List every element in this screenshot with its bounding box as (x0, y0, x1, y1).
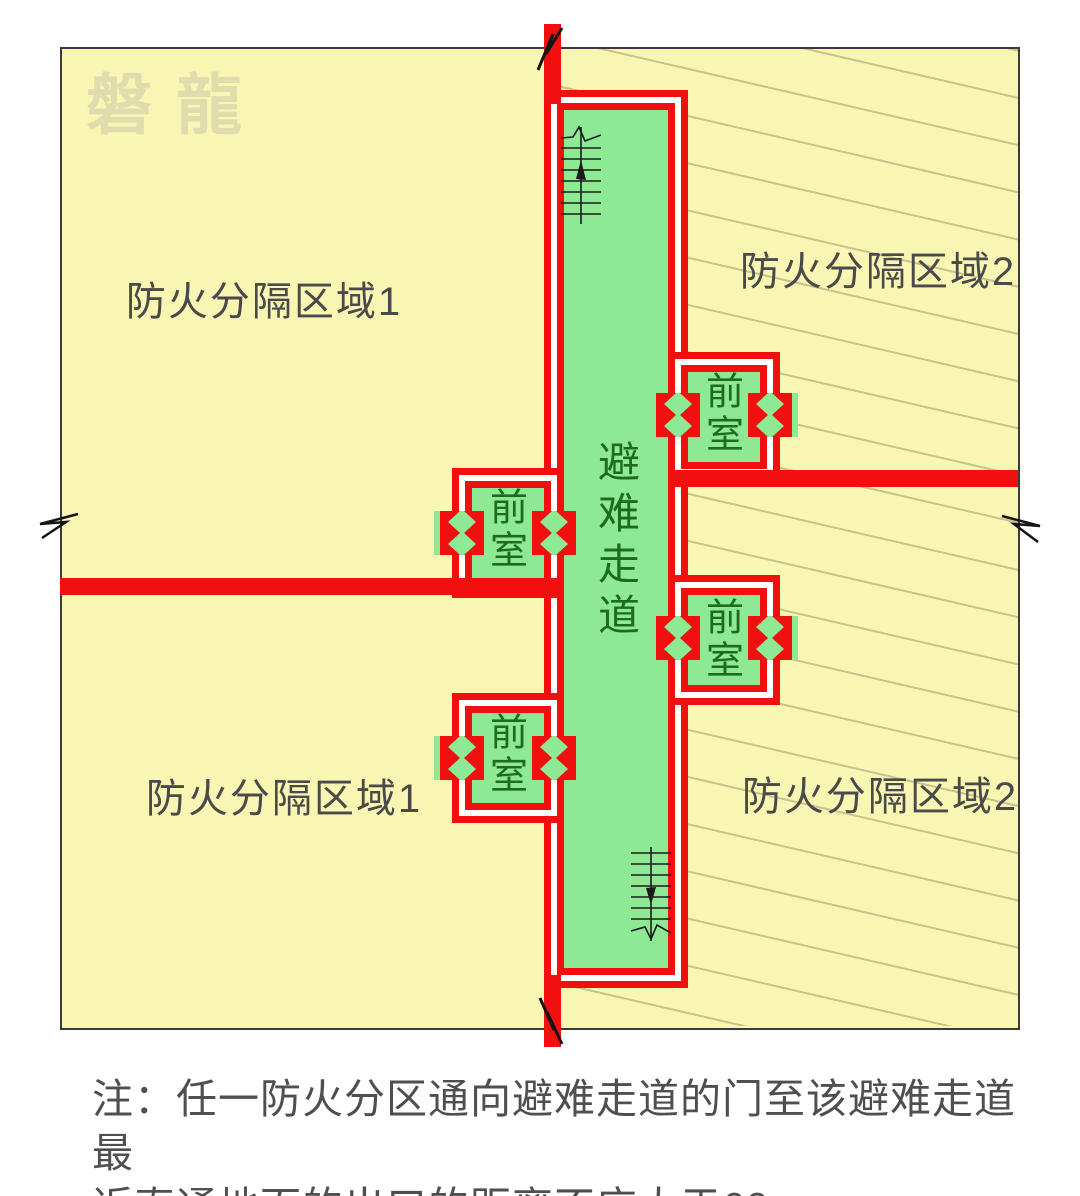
watermark: 磐龍 (86, 52, 266, 148)
zone2-top-label: 防火分隔区域2 (740, 239, 1016, 297)
vestibule-label-mid-left: 前室 (478, 487, 533, 573)
fire-door-icon (525, 507, 583, 559)
fire-door-icon (741, 389, 799, 441)
note-line-1: 注：任一防火分区通向避难走道的门至该避难走道最 (92, 1072, 1052, 1180)
break-mark-icon (994, 506, 1046, 546)
corridor-label: 避难走道 (586, 440, 647, 644)
vestibule-label-lower-left: 前室 (478, 712, 533, 798)
stair-icon (628, 843, 674, 947)
fire-separation-wall-left (60, 578, 564, 595)
vestibule-label-lower-right: 前室 (694, 597, 749, 683)
zone1-top-label: 防火分隔区域1 (126, 269, 402, 327)
fire-separation-wall-right (668, 470, 1018, 487)
zone1-bottom-label: 防火分隔区域1 (146, 766, 422, 824)
fire-door-icon (741, 612, 799, 664)
fire-door-icon (525, 732, 583, 784)
break-mark-icon (34, 506, 86, 546)
vestibule-label-upper-right: 前室 (694, 371, 749, 457)
fire-evacuation-diagram: 磐龍 防火分隔区域1 防火分隔区域2 防火分隔区域1 防火分隔区域2 (0, 0, 1080, 1196)
break-mark-icon (526, 26, 578, 72)
stair-icon (558, 124, 604, 228)
note-line-2: 近直通地面的出口的距离不应大于60m (92, 1180, 1052, 1196)
break-mark-icon (526, 994, 578, 1046)
zone2-bottom-label: 防火分隔区域2 (742, 764, 1018, 822)
note-text: 注：任一防火分区通向避难走道的门至该避难走道最 近直通地面的出口的距离不应大于6… (92, 1072, 1052, 1196)
